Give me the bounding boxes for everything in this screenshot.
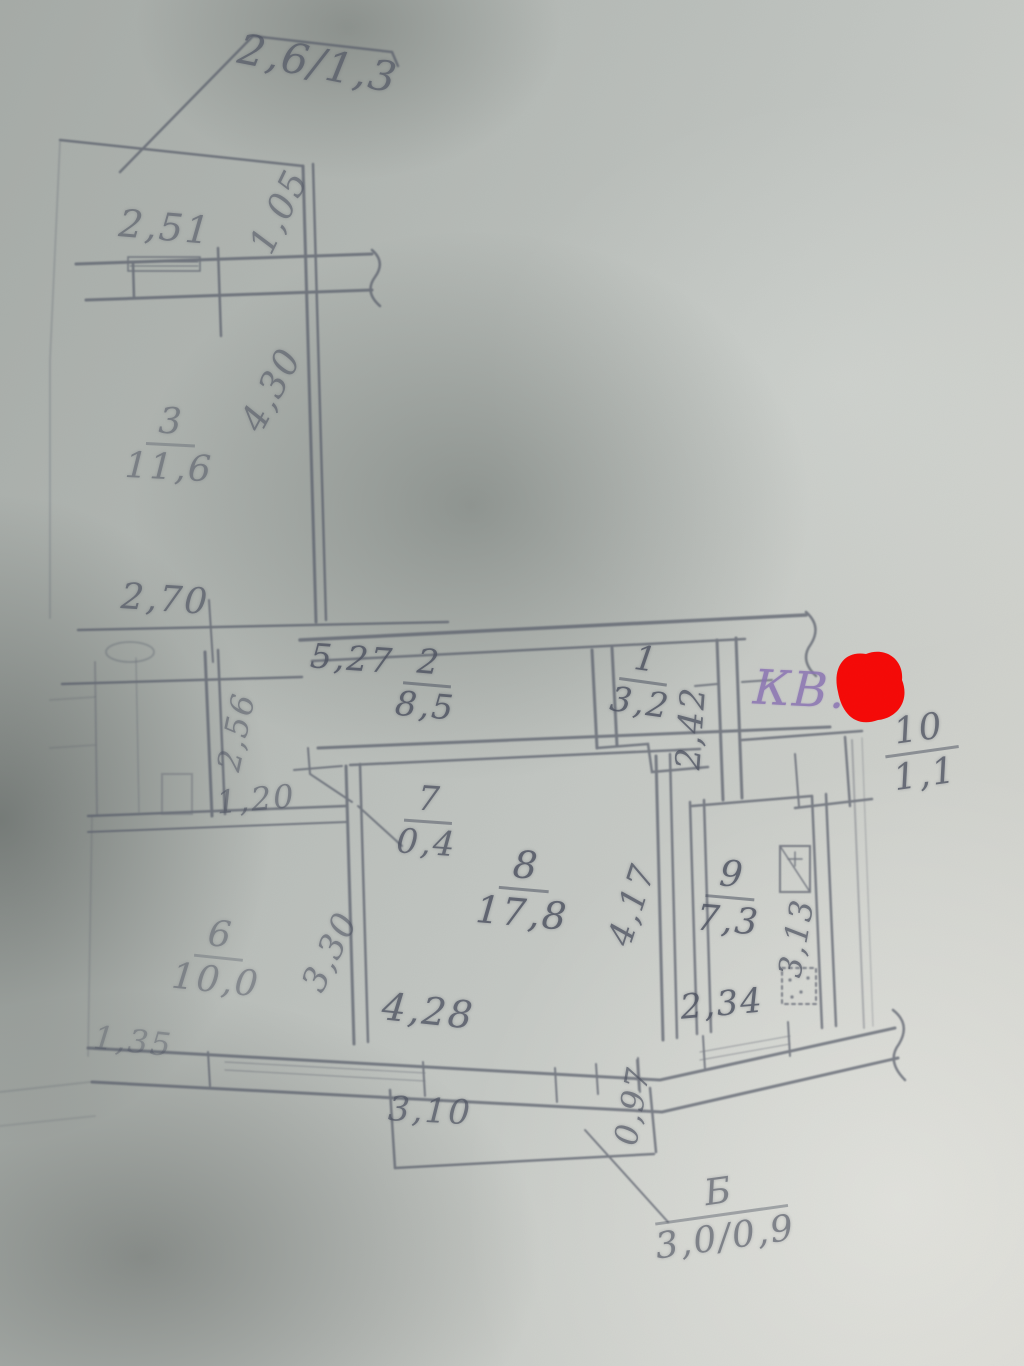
redaction-blob <box>836 652 904 723</box>
floor-plan-photo: 2,6/1,3 2,51 1,05 4,30 3 11,6 2,70 5,27 … <box>0 0 1024 1366</box>
redaction-mark <box>0 0 1024 1366</box>
